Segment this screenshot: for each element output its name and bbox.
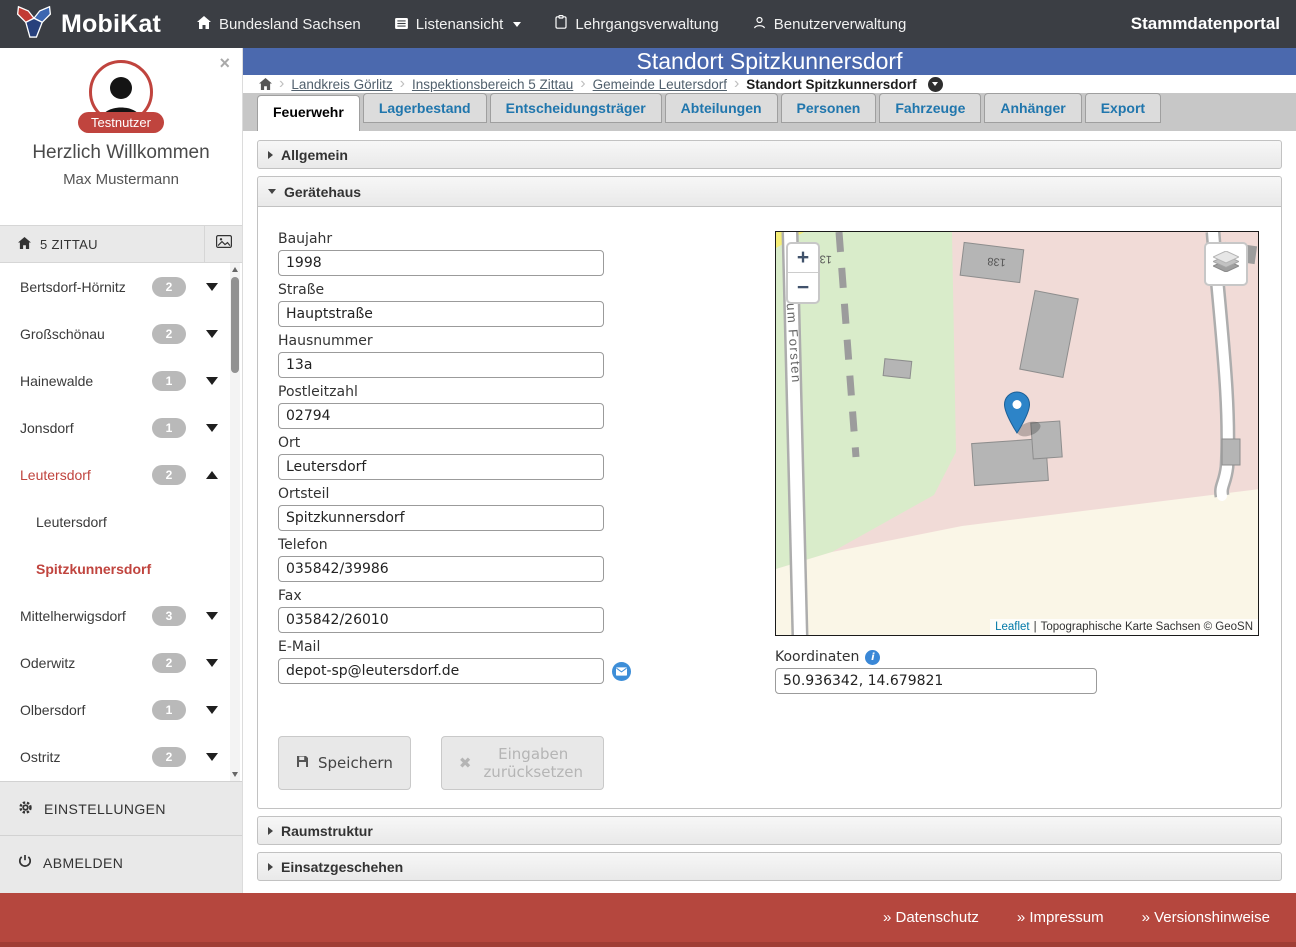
sidebar-list-item[interactable]: Leutersdorf (0, 498, 242, 545)
user-name: Max Mustermann (0, 171, 242, 188)
form-field: Ort (278, 435, 604, 480)
sidebar-list-item[interactable]: Jonsdorf 1 (0, 404, 242, 451)
brand-name: MobiKat (61, 10, 161, 39)
form-field: Hausnummer (278, 333, 604, 378)
main-nav: Bundesland Sachsen Listenansicht Lehrgan… (197, 15, 906, 33)
breadcrumb-link[interactable]: Gemeinde Leutersdorf (593, 77, 727, 92)
chevron-icon[interactable] (206, 753, 218, 761)
breadcrumb-separator: › (580, 75, 585, 93)
tab[interactable]: Personen (781, 93, 877, 123)
tab-label: Export (1101, 100, 1145, 116)
nav-item-lehrgangsverwaltung[interactable]: Lehrgangsverwaltung (555, 15, 718, 33)
form-field: Straße (278, 282, 604, 327)
logout-button[interactable]: ABMELDEN (0, 835, 242, 889)
tab-bar: Feuerwehr Lagerbestand Entscheidungsträg… (243, 93, 1296, 131)
field-label: Postleitzahl (278, 384, 604, 400)
field-label: E-Mail (278, 639, 604, 655)
send-email-button[interactable] (612, 662, 631, 681)
tab[interactable]: Entscheidungsträger (490, 93, 662, 123)
user-icon (753, 16, 766, 33)
main-area: Standort Spitzkunnersdorf › Landkreis Gö… (243, 48, 1296, 893)
sidebar-list-item[interactable]: Ostritz 2 (0, 733, 242, 780)
field-input[interactable] (278, 352, 604, 378)
map-canvas: Zum Forsten 134 138 (776, 232, 1259, 636)
chevron-icon[interactable] (206, 330, 218, 338)
page-title: Standort Spitzkunnersdorf (243, 48, 1296, 75)
save-icon (296, 754, 309, 772)
list-icon (395, 16, 408, 33)
chevron-icon[interactable] (206, 377, 218, 385)
breadcrumb-separator: › (279, 75, 284, 93)
chevron-down-icon (513, 22, 521, 27)
field-input[interactable] (278, 454, 604, 480)
nav-label: Lehrgangsverwaltung (575, 16, 718, 33)
avatar-badge: Testnutzer (78, 112, 164, 133)
scroll-down-icon[interactable] (232, 772, 238, 777)
field-label: Baujahr (278, 231, 604, 247)
sidebar-item-label: Spitzkunnersdorf (36, 561, 151, 577)
sidebar-list-item[interactable]: Bertsdorf-Hörnitz 2 (0, 263, 242, 310)
tab-label: Personen (797, 100, 861, 116)
building-label: 138 (987, 255, 1006, 268)
power-icon (18, 854, 32, 871)
top-navbar: MobiKat Bundesland Sachsen Listenansicht… (0, 0, 1296, 48)
chevron-icon[interactable] (206, 706, 218, 714)
sidebar: × Testnutzer Herzlich Willkommen Max Mus… (0, 48, 243, 893)
nav-item-listenansicht[interactable]: Listenansicht (395, 16, 522, 33)
form-field: Telefon (278, 537, 604, 582)
sidebar-list-item[interactable]: Olbersdorf 1 (0, 686, 242, 733)
map-attribution: Leaflet | Topographische Karte Sachsen ©… (990, 619, 1258, 635)
nav-item-benutzerverwaltung[interactable]: Benutzerverwaltung (753, 16, 907, 33)
map-layers-button[interactable] (1204, 242, 1248, 286)
clipboard-icon (555, 15, 567, 33)
accordion-raumstruktur[interactable]: Raumstruktur (257, 816, 1282, 845)
leaflet-link[interactable]: Leaflet (995, 621, 1030, 633)
caret-right-icon (268, 863, 273, 871)
tab[interactable]: Export (1085, 93, 1161, 123)
info-icon[interactable]: i (865, 650, 880, 665)
field-label: Hausnummer (278, 333, 604, 349)
sidebar-list-item[interactable]: Oderwitz 2 (0, 639, 242, 686)
field-input[interactable] (278, 505, 604, 531)
breadcrumb-separator: › (734, 75, 739, 93)
map-column: Zum Forsten 134 138 + (775, 231, 1261, 790)
count-badge: 2 (152, 324, 186, 344)
field-input[interactable] (278, 301, 604, 327)
accordion-label: Gerätehaus (284, 184, 361, 200)
breadcrumb-current: Standort Spitzkunnersdorf (746, 77, 916, 92)
form-field: Postleitzahl (278, 384, 604, 429)
form-field: E-Mail (278, 639, 604, 684)
tab[interactable]: Abteilungen (665, 93, 778, 123)
sidebar-list-item[interactable]: Spitzkunnersdorf (0, 545, 242, 592)
region-bar: 5 ZITTAU (0, 225, 242, 263)
logout-label: ABMELDEN (43, 855, 123, 871)
count-badge: 3 (152, 606, 186, 626)
reset-label: Eingaben zurücksetzen (480, 745, 586, 781)
count-badge: 2 (152, 465, 186, 485)
tab-label: Abteilungen (681, 100, 762, 116)
sidebar-item-label: Großschönau (20, 326, 105, 342)
nav-label: Benutzerverwaltung (774, 16, 907, 33)
geraetehaus-form: Baujahr Straße (278, 231, 604, 790)
attribution-text: Topographische Karte Sachsen © GeoSN (1041, 621, 1253, 633)
page-footer: » Datenschutz » Impressum » Versionshinw… (0, 893, 1296, 947)
field-input[interactable] (278, 658, 604, 684)
profile-panel: × Testnutzer Herzlich Willkommen Max Mus… (0, 48, 242, 225)
portal-title: Stammdatenportal (1131, 14, 1296, 34)
home-icon (18, 237, 31, 252)
tab-label: Anhänger (1000, 100, 1065, 116)
brand[interactable]: MobiKat (0, 5, 175, 43)
breadcrumb: › Landkreis Görlitz › Inspektionsbereich… (243, 75, 1296, 93)
accordion-label: Einsatzgeschehen (281, 859, 403, 875)
sidebar-item-label: Leutersdorf (20, 467, 91, 483)
accordion-geraetehaus[interactable]: Gerätehaus (257, 176, 1282, 207)
gear-icon (18, 800, 33, 818)
chevron-icon[interactable] (206, 659, 218, 667)
sidebar-item-label: Jonsdorf (20, 420, 74, 436)
count-badge: 2 (152, 747, 186, 767)
form-field: Baujahr (278, 231, 604, 276)
zoom-in-button[interactable]: + (788, 244, 818, 273)
attribution-separator: | (1034, 621, 1037, 633)
sidebar-list-item[interactable]: Hainewalde 1 (0, 357, 242, 404)
scroll-up-icon[interactable] (232, 267, 238, 272)
close-icon[interactable]: × (219, 54, 230, 72)
caret-right-icon (268, 151, 273, 159)
accordion-einsatzgeschehen[interactable]: Einsatzgeschehen (257, 852, 1282, 881)
caret-down-icon (268, 189, 276, 194)
breadcrumb-separator: › (400, 75, 405, 93)
field-input[interactable] (278, 250, 604, 276)
chevron-icon[interactable] (206, 471, 218, 479)
sidebar-list-item[interactable]: Großschönau 2 (0, 310, 242, 357)
home-icon (197, 16, 211, 33)
field-label: Ort (278, 435, 604, 451)
sidebar-item-label: Leutersdorf (36, 514, 107, 530)
tab-label: Entscheidungsträger (506, 100, 646, 116)
caret-right-icon (268, 827, 273, 835)
field-label: Ortsteil (278, 486, 604, 502)
sidebar-item-label: Ostritz (20, 749, 60, 765)
count-badge: 1 (152, 700, 186, 720)
location-menu-icon[interactable] (928, 77, 943, 92)
sidebar-item-label: Oderwitz (20, 655, 75, 671)
scrollbar-thumb[interactable] (231, 277, 239, 373)
accordion-label: Allgemein (281, 147, 348, 163)
coordinates-input[interactable] (775, 668, 1097, 694)
zoom-out-button[interactable]: − (788, 273, 818, 302)
field-input[interactable] (278, 607, 604, 633)
form-field: Fax (278, 588, 604, 633)
breadcrumb-link[interactable]: Landkreis Görlitz (291, 77, 392, 92)
sidebar-item-label: Olbersdorf (20, 702, 85, 718)
region-label: 5 ZITTAU (40, 237, 98, 252)
home-icon[interactable] (259, 78, 272, 90)
accordion-label: Raumstruktur (281, 823, 373, 839)
image-icon (216, 235, 232, 253)
field-label: Telefon (278, 537, 604, 553)
save-button[interactable]: Speichern (278, 736, 411, 790)
footer-link[interactable]: » Versionshinweise (1142, 909, 1270, 926)
sidebar-scrollbar[interactable] (230, 263, 240, 781)
region-home-button[interactable]: 5 ZITTAU (0, 237, 204, 252)
nav-label: Bundesland Sachsen (219, 16, 361, 33)
municipality-list: Bertsdorf-Hörnitz 2 Großschönau 2 Hainew… (0, 263, 242, 781)
field-label: Straße (278, 282, 604, 298)
geraetehaus-panel: Baujahr Straße (257, 207, 1282, 809)
reset-button[interactable]: ✖ Eingaben zurücksetzen (441, 736, 604, 790)
tab[interactable]: Feuerwehr (257, 95, 360, 131)
tab[interactable]: Fahrzeuge (879, 93, 981, 123)
count-badge: 2 (152, 653, 186, 673)
leaflet-map[interactable]: Zum Forsten 134 138 + (775, 231, 1259, 636)
chevron-icon[interactable] (206, 283, 218, 291)
layers-icon (1213, 251, 1239, 277)
footer-link[interactable]: » Impressum (1017, 909, 1104, 926)
x-icon: ✖ (459, 754, 472, 772)
field-input[interactable] (278, 556, 604, 582)
sidebar-item-label: Mittelherwigsdorf (20, 608, 126, 624)
breadcrumb-link[interactable]: Inspektionsbereich 5 Zittau (412, 77, 573, 92)
coordinates-field: Koordinaten i (775, 649, 1261, 694)
sidebar-list-item[interactable]: Leutersdorf 2 (0, 451, 242, 498)
settings-button[interactable]: EINSTELLUNGEN (0, 781, 242, 835)
count-badge: 2 (152, 277, 186, 297)
coordinates-label: Koordinaten (775, 649, 859, 665)
app-window: MobiKat Bundesland Sachsen Listenansicht… (0, 0, 1296, 947)
map-zoom-control: + − (786, 242, 820, 304)
field-label: Fax (278, 588, 604, 604)
count-badge: 1 (152, 418, 186, 438)
nav-item-bundesland[interactable]: Bundesland Sachsen (197, 16, 361, 33)
form-field: Ortsteil (278, 486, 604, 531)
sidebar-item-label: Bertsdorf-Hörnitz (20, 279, 126, 295)
chevron-icon[interactable] (206, 424, 218, 432)
field-input[interactable] (278, 403, 604, 429)
tab-label: Lagerbestand (379, 100, 471, 116)
sidebar-list-item[interactable]: Mittelherwigsdorf 3 (0, 592, 242, 639)
footer-link[interactable]: » Datenschutz (883, 909, 979, 926)
chevron-icon[interactable] (206, 612, 218, 620)
mobikat-logo-icon (16, 5, 52, 43)
tab[interactable]: Lagerbestand (363, 93, 487, 123)
tab-label: Fahrzeuge (895, 100, 965, 116)
nav-label: Listenansicht (416, 16, 504, 33)
save-label: Speichern (318, 754, 393, 772)
tab-label: Feuerwehr (273, 104, 344, 120)
content-area: Allgemein Gerätehaus Baujahr (243, 131, 1296, 914)
welcome-text: Herzlich Willkommen (0, 142, 242, 164)
sidebar-item-label: Hainewalde (20, 373, 93, 389)
map-view-button[interactable] (204, 226, 242, 262)
settings-label: EINSTELLUNGEN (44, 801, 166, 817)
accordion-allgemein[interactable]: Allgemein (257, 140, 1282, 169)
tab[interactable]: Anhänger (984, 93, 1081, 123)
count-badge: 1 (152, 371, 186, 391)
